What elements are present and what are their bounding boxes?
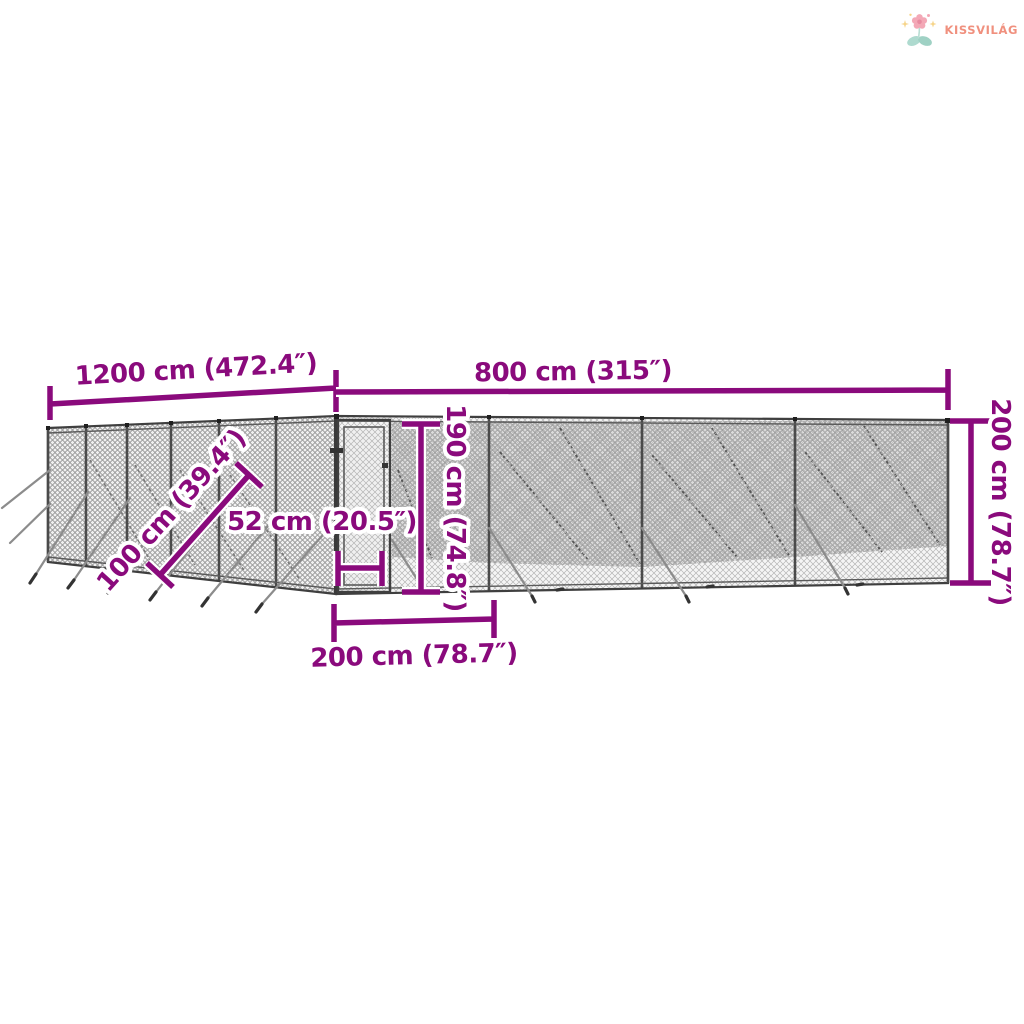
dimension-label-door-height: 190 cm (74.8″)	[440, 404, 470, 611]
kennel-front-wall	[336, 416, 948, 594]
dimension-label-height: 200 cm (78.7″)	[985, 398, 1015, 605]
door-hinge	[382, 463, 388, 468]
dimension-label-length: 1200 cm (472.4″)	[74, 348, 318, 391]
dimension-height: 200 cm (78.7″)	[950, 398, 1015, 605]
kennel-diagram: 1200 cm (472.4″) 800 cm (315″) 200 cm (7…	[0, 0, 1024, 1024]
product-dimension-diagram: KISSVILÁG	[0, 0, 1024, 1024]
door-handle	[330, 448, 343, 453]
dimension-label-door-width: 52 cm (20.5″)	[227, 507, 417, 537]
dimension-width: 800 cm (315″)	[336, 356, 948, 410]
dimension-label-width: 800 cm (315″)	[474, 356, 672, 389]
dimension-label-door-section: 200 cm (78.7″)	[310, 638, 518, 673]
dimension-length: 1200 cm (472.4″)	[50, 348, 336, 420]
dimension-door-section: 200 cm (78.7″)	[310, 600, 518, 674]
